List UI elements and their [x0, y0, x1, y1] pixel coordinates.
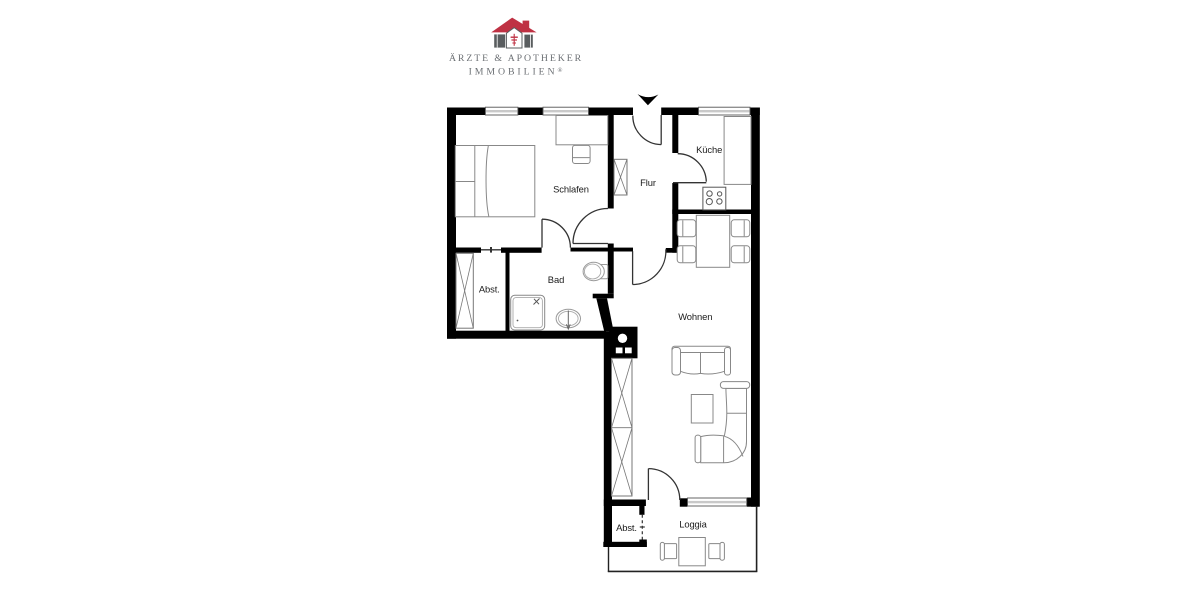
svg-text:Wohnen: Wohnen [678, 311, 712, 322]
svg-text:Bad: Bad [548, 274, 564, 285]
svg-text:Abst.: Abst. [479, 283, 500, 294]
svg-text:Abst.: Abst. [616, 522, 637, 533]
svg-text:IMMOBILIEN®: IMMOBILIEN® [469, 67, 566, 78]
svg-text:Schlafen: Schlafen [553, 184, 589, 195]
svg-text:Flur: Flur [640, 177, 656, 188]
svg-text:ÄRZTE & APOTHEKER: ÄRZTE & APOTHEKER [449, 52, 583, 64]
svg-text:Loggia: Loggia [679, 518, 707, 529]
svg-text:Küche: Küche [696, 144, 722, 155]
